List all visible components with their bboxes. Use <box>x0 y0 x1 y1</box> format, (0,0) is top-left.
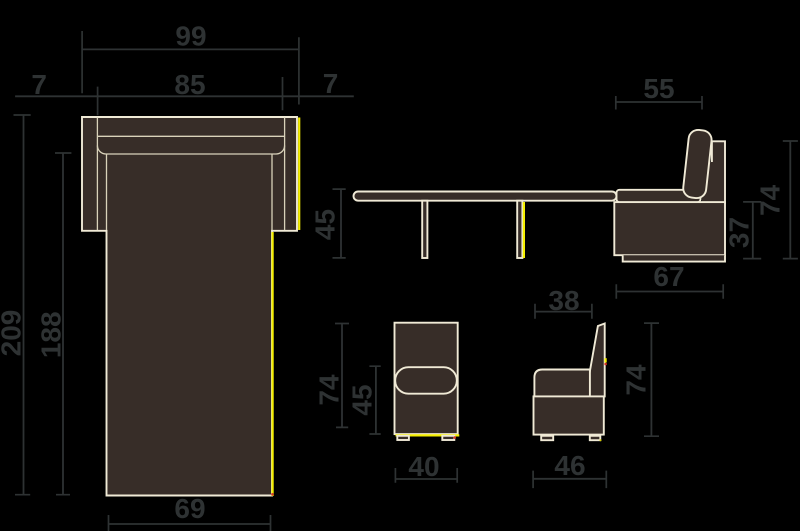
svg-text:209: 209 <box>0 310 26 357</box>
svg-text:188: 188 <box>35 311 66 358</box>
svg-text:67: 67 <box>653 261 684 292</box>
svg-text:85: 85 <box>174 69 205 100</box>
svg-text:55: 55 <box>643 73 674 104</box>
svg-text:99: 99 <box>175 21 206 52</box>
svg-text:7: 7 <box>31 69 47 100</box>
svg-text:45: 45 <box>310 209 341 240</box>
svg-text:46: 46 <box>554 450 585 481</box>
svg-text:38: 38 <box>548 285 579 316</box>
svg-text:40: 40 <box>408 451 439 482</box>
svg-text:7: 7 <box>323 68 339 99</box>
svg-text:74: 74 <box>620 364 651 396</box>
svg-text:74: 74 <box>755 184 786 216</box>
svg-text:45: 45 <box>346 384 377 415</box>
svg-text:74: 74 <box>314 374 345 406</box>
svg-text:69: 69 <box>174 493 205 524</box>
svg-text:37: 37 <box>724 217 755 248</box>
